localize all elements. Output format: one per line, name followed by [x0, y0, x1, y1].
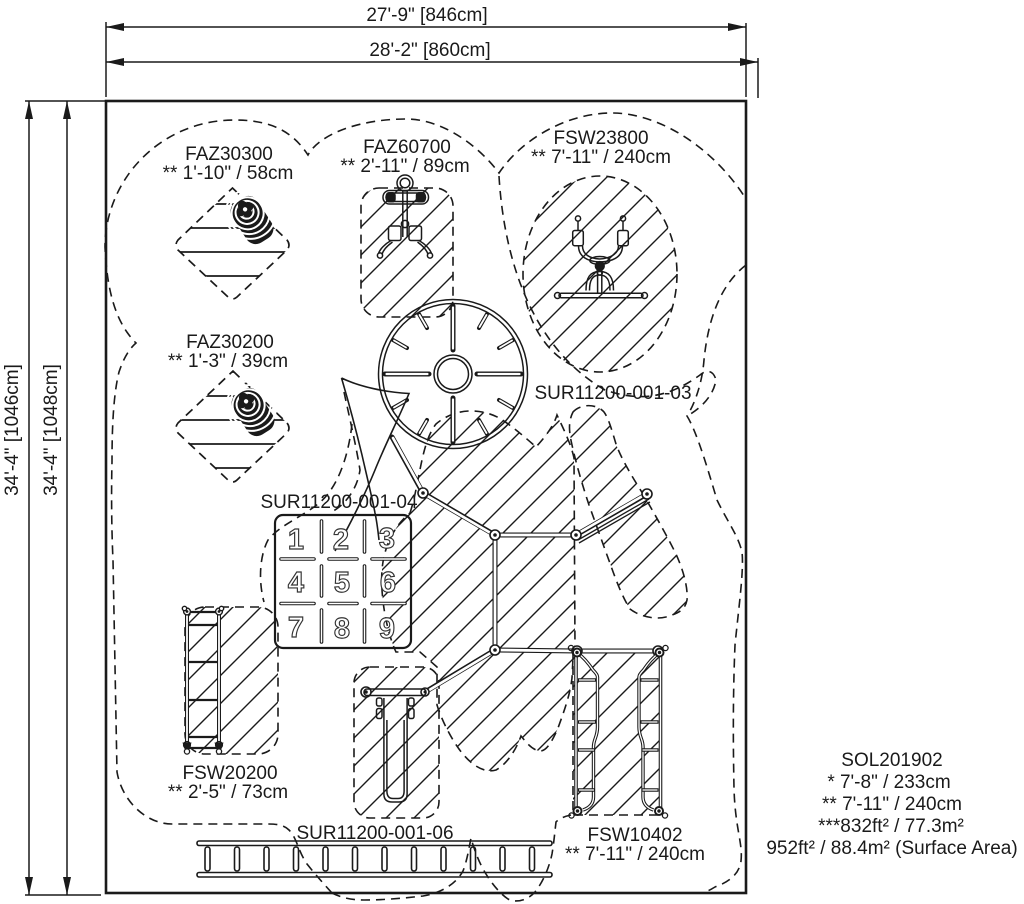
svg-text:FAZ30200: FAZ30200 — [186, 332, 274, 353]
svg-text:8: 8 — [334, 613, 350, 645]
svg-text:* 7'-8" / 233cm: * 7'-8" / 233cm — [827, 772, 950, 793]
svg-text:952ft² / 88.4m² (Surface Area): 952ft² / 88.4m² (Surface Area) — [766, 838, 1017, 859]
svg-text:** 7'-11" / 240cm: ** 7'-11" / 240cm — [565, 844, 705, 865]
svg-text:** 2'-5" / 73cm: ** 2'-5" / 73cm — [168, 782, 288, 803]
svg-text:4: 4 — [288, 567, 304, 599]
svg-text:** 7'-11" / 240cm: ** 7'-11" / 240cm — [531, 147, 671, 168]
svg-text:FAZ60700: FAZ60700 — [363, 137, 451, 158]
svg-text:FSW20200: FSW20200 — [182, 763, 277, 784]
svg-text:34'-4" [1048cm]: 34'-4" [1048cm] — [41, 364, 62, 496]
svg-text:FSW10402: FSW10402 — [587, 825, 682, 846]
svg-text:** 1'-3" / 39cm: ** 1'-3" / 39cm — [168, 351, 288, 372]
svg-text:3: 3 — [379, 523, 395, 555]
svg-text:** 2'-11" / 89cm: ** 2'-11" / 89cm — [340, 156, 469, 177]
svg-text:SUR11200-001-03: SUR11200-001-03 — [534, 383, 691, 404]
svg-text:SOL201902: SOL201902 — [841, 750, 942, 771]
svg-text:28'-2" [860cm]: 28'-2" [860cm] — [369, 40, 490, 61]
svg-text:7: 7 — [288, 612, 304, 644]
svg-text:34'-4" [1046cm]: 34'-4" [1046cm] — [2, 364, 23, 496]
svg-text:SUR11200-001-04: SUR11200-001-04 — [260, 492, 417, 513]
svg-text:2: 2 — [333, 524, 349, 556]
svg-text:FSW23800: FSW23800 — [553, 128, 648, 149]
svg-text:** 7'-11" / 240cm: ** 7'-11" / 240cm — [822, 794, 962, 815]
svg-text:5: 5 — [334, 567, 350, 599]
svg-text:SUR11200-001-06: SUR11200-001-06 — [296, 823, 453, 844]
svg-text:27'-9" [846cm]: 27'-9" [846cm] — [366, 5, 487, 26]
svg-text:1: 1 — [288, 524, 304, 556]
svg-text:FAZ30300: FAZ30300 — [185, 144, 273, 165]
svg-text:6: 6 — [380, 567, 396, 599]
svg-text:** 1'-10" / 58cm: ** 1'-10" / 58cm — [163, 163, 294, 184]
svg-text:9: 9 — [379, 613, 395, 645]
svg-text:***832ft² / 77.3m²: ***832ft² / 77.3m² — [818, 816, 964, 837]
